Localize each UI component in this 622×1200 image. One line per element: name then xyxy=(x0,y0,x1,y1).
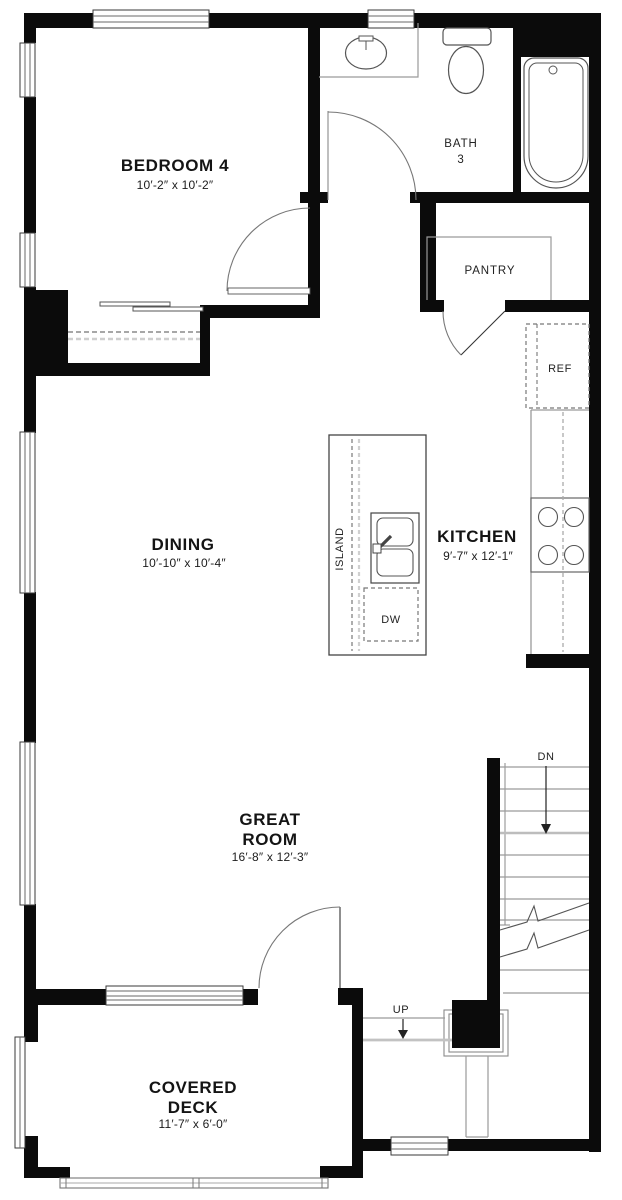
stair-treads-below-break xyxy=(500,970,589,993)
refrigerator xyxy=(526,324,589,408)
window-greatroom-left xyxy=(20,742,35,905)
kitchen-counter xyxy=(531,410,589,654)
lower-flight xyxy=(466,1056,488,1137)
closet-bypass-door-1 xyxy=(100,302,170,306)
bath-door xyxy=(328,111,416,200)
bathtub xyxy=(524,58,588,188)
closet-corner-mass xyxy=(24,290,68,374)
stair-treads-down xyxy=(500,767,589,920)
bedroom-door xyxy=(227,208,310,294)
window-dining-left xyxy=(20,432,35,593)
greatroom-deck-door xyxy=(259,907,340,988)
tub-drain xyxy=(549,66,557,74)
dn-arrow xyxy=(541,766,551,834)
stair-newel-post-top xyxy=(452,1000,500,1048)
floor-plan-graphics xyxy=(0,0,622,1200)
bath-sink xyxy=(346,36,387,69)
range-cooktop xyxy=(531,498,589,572)
toilet xyxy=(443,28,491,94)
window-bedroom-top xyxy=(93,10,209,28)
pantry-shelving xyxy=(427,237,551,300)
window-bath-top xyxy=(368,10,414,28)
bedroom-closet xyxy=(68,302,203,339)
kitchen-island xyxy=(329,435,426,655)
floor-plan: BEDROOM 4 10′-2″ x 10′-2″ BATH 3 PANTRY … xyxy=(0,0,622,1200)
up-arrow xyxy=(398,1019,408,1039)
window-bedroom-left-2 xyxy=(20,233,35,287)
window-bedroom-left-1 xyxy=(20,43,35,97)
stair-break-lines xyxy=(500,903,589,957)
closet-bypass-door-2 xyxy=(133,307,203,311)
window-bottom-entry xyxy=(391,1137,448,1155)
top-right-wall-block xyxy=(513,13,601,57)
window-deck-left xyxy=(15,1037,25,1148)
stair-treads-up xyxy=(363,1018,452,1040)
island-sink xyxy=(371,513,419,583)
sliding-door-deck xyxy=(106,986,243,1005)
pantry-door xyxy=(443,311,505,355)
deck-railing xyxy=(60,1178,328,1188)
stairs xyxy=(363,763,589,1137)
dishwasher xyxy=(364,588,418,641)
